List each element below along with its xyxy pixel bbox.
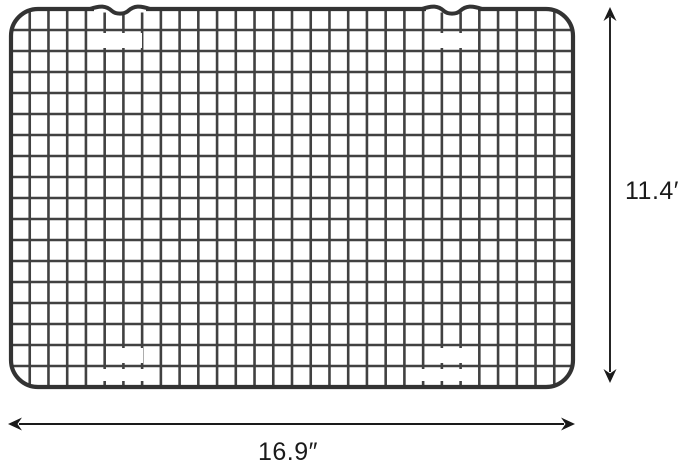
- height-arrow: [604, 7, 617, 383]
- width-dimension-label: 16.9″: [238, 439, 338, 466]
- height-dimension-label: 11.4″: [625, 178, 679, 206]
- width-arrow: [8, 418, 575, 431]
- product-dimension-image: 11.4″ 16.9″: [0, 0, 679, 466]
- dimension-arrows: [0, 0, 679, 466]
